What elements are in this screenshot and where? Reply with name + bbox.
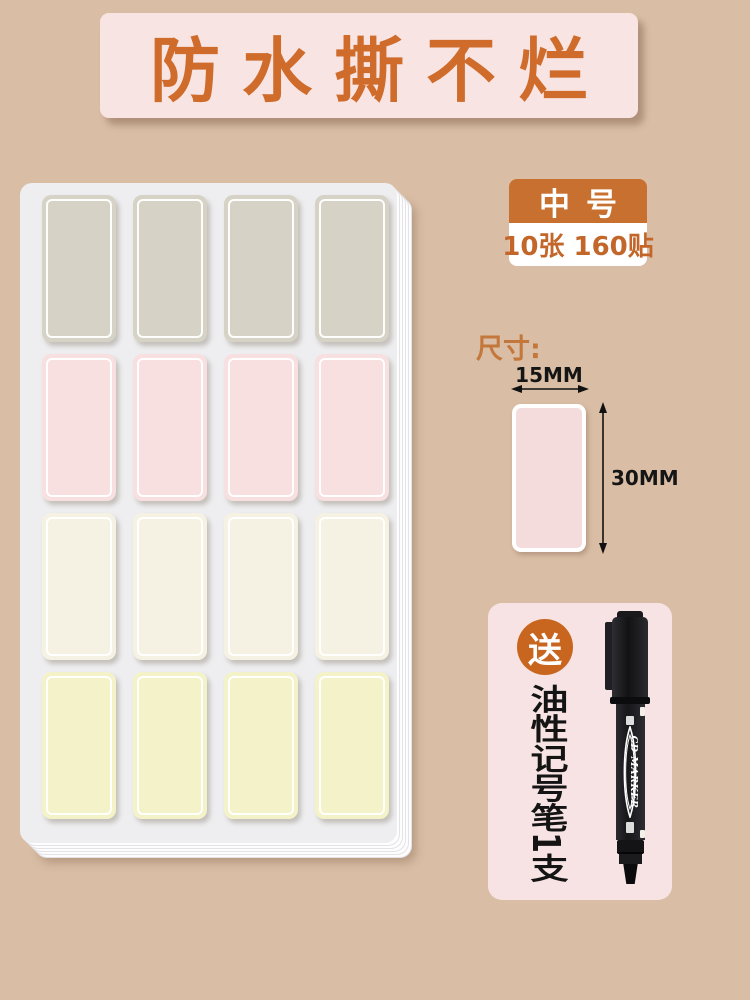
banner: 防水撕不烂 bbox=[100, 13, 638, 118]
sticker-label bbox=[315, 672, 389, 819]
sticker-label bbox=[42, 195, 116, 342]
gift-badge: 送 bbox=[517, 619, 573, 675]
sticker-size-demo bbox=[512, 404, 586, 552]
height-arrow-icon bbox=[597, 402, 609, 554]
page-root: { "page": { "background": "#d9bda5" }, "… bbox=[0, 0, 750, 1000]
sticker-label bbox=[42, 513, 116, 660]
pen-notch bbox=[640, 830, 645, 838]
sticker-label bbox=[133, 354, 207, 501]
sticker-label bbox=[224, 195, 298, 342]
pen-cap-flange bbox=[610, 697, 650, 704]
sticker-label bbox=[133, 672, 207, 819]
banner-text: 防水撕不烂 bbox=[128, 15, 610, 116]
size-badge: 中号 10张 160贴 bbox=[509, 179, 647, 266]
gift-description: 油性记号笔1支 bbox=[527, 684, 565, 887]
pen-glyph bbox=[626, 822, 634, 833]
pen-lower-cap bbox=[617, 840, 644, 854]
sticker-label bbox=[42, 354, 116, 501]
size-badge-count: 10张 160贴 bbox=[509, 223, 647, 266]
width-arrow-icon bbox=[511, 383, 589, 395]
pen-cap bbox=[612, 617, 648, 699]
sticker-label bbox=[315, 513, 389, 660]
sticker-label bbox=[133, 513, 207, 660]
pen-glyph bbox=[626, 716, 634, 725]
sticker-label bbox=[224, 672, 298, 819]
pen-notch bbox=[640, 707, 645, 716]
sticker-label bbox=[224, 354, 298, 501]
sticker-label bbox=[315, 195, 389, 342]
pen-brand-lens: CD MARKER bbox=[615, 726, 645, 818]
pen-brand-text: CD MARKER bbox=[628, 736, 639, 809]
dimensions-heading: 尺寸: bbox=[476, 327, 541, 366]
label-grid bbox=[42, 195, 389, 819]
size-badge-size: 中号 bbox=[509, 179, 647, 223]
sticker-label bbox=[133, 195, 207, 342]
sticker-label bbox=[42, 672, 116, 819]
height-value: 30MM bbox=[611, 466, 679, 490]
sticker-label bbox=[224, 513, 298, 660]
pen-lower-mid bbox=[619, 854, 642, 864]
sticker-label bbox=[315, 354, 389, 501]
